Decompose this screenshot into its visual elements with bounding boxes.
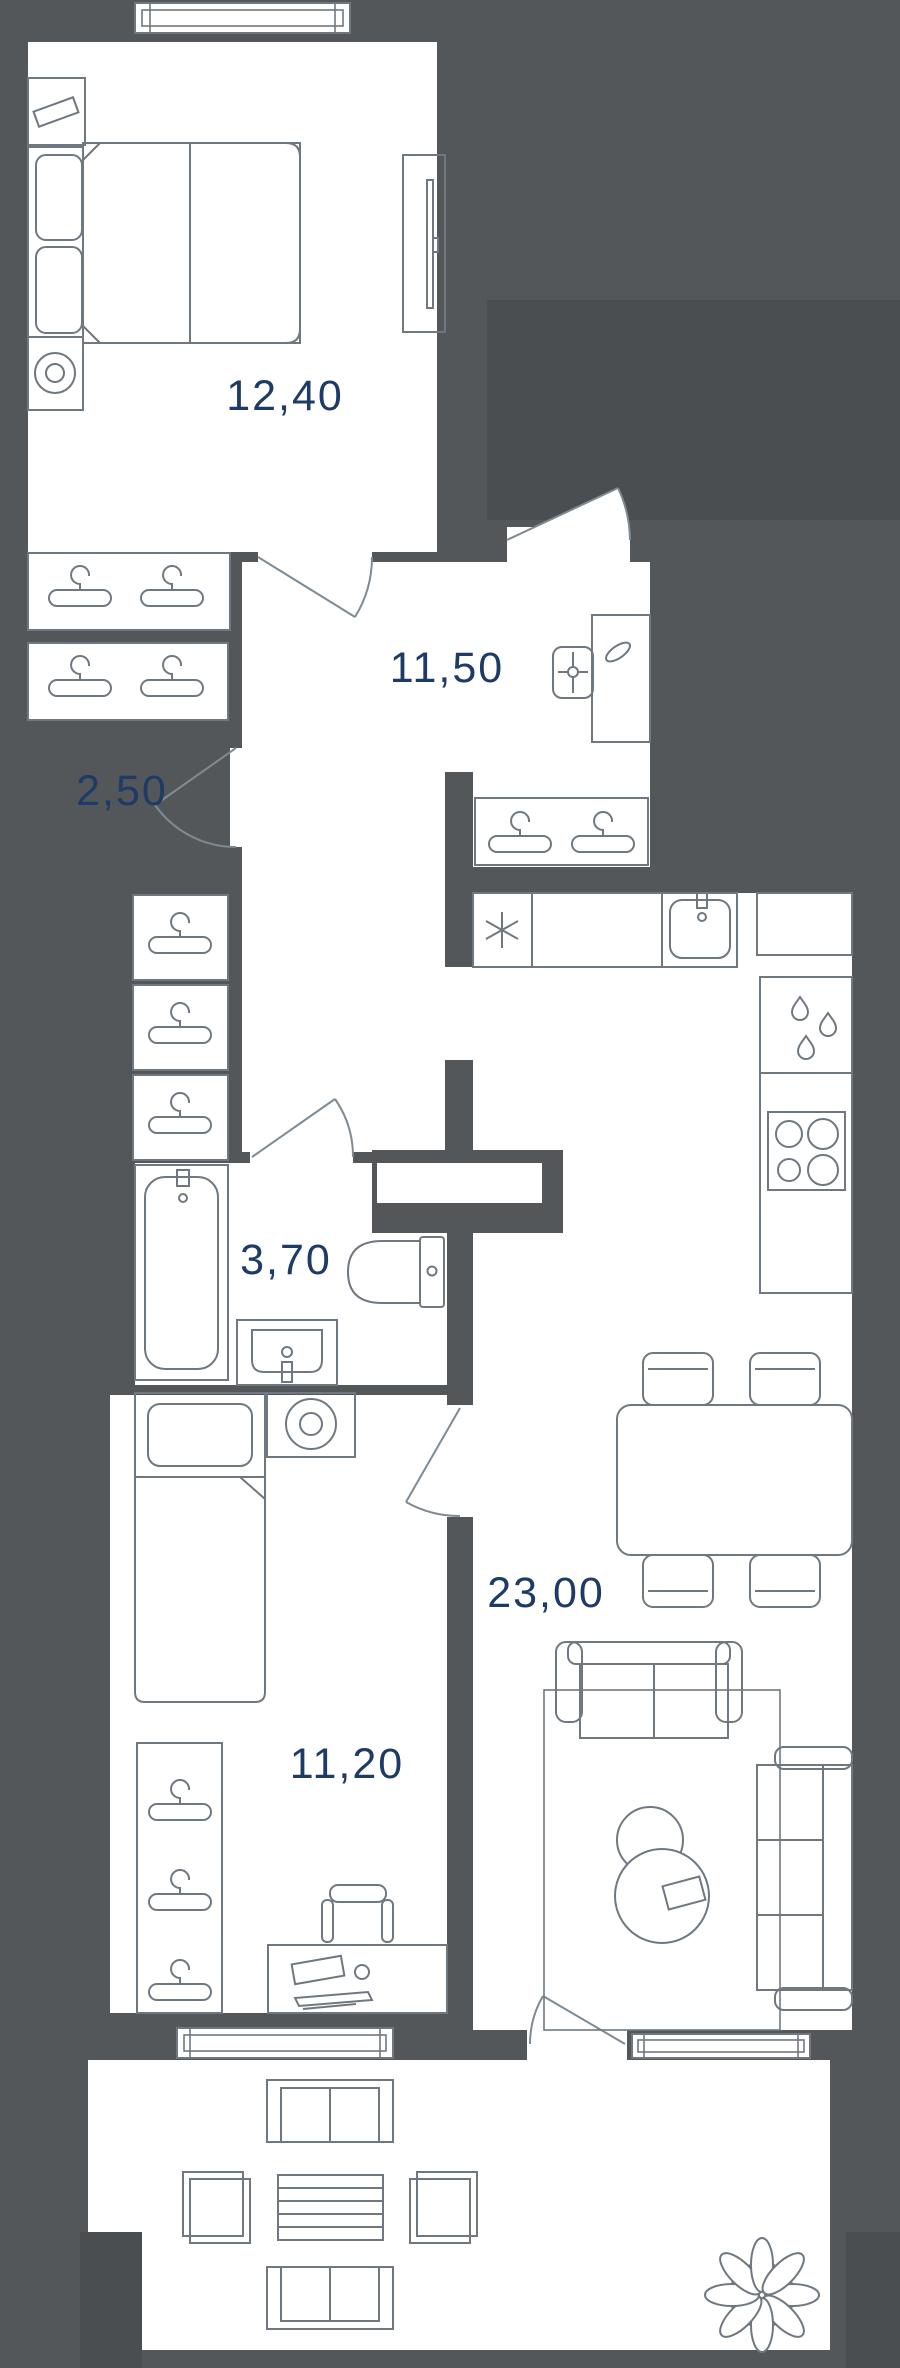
- balcony-floor: [88, 2060, 830, 2350]
- bedroom-area-label: 12,40: [226, 372, 344, 420]
- balcony-door-opening: [527, 2030, 627, 2060]
- pier-left: [80, 2232, 142, 2368]
- floor-plan-page: 12,40 11,50 2,50 3,70 23,00 11,20: [0, 0, 900, 2368]
- kitchen-living-area-label: 23,00: [487, 1569, 605, 1617]
- bedroom-door-opening: [258, 548, 372, 564]
- passage-floor: [445, 967, 473, 1060]
- bedroom2-door-opening: [445, 1405, 475, 1517]
- wardrobe-area-label: 2,50: [76, 767, 168, 815]
- dining-table: [617, 1405, 852, 1555]
- wardrobe-door-opening: [230, 748, 244, 847]
- coat-hanger-shelf: [475, 798, 648, 865]
- floor-plan-svg: 12,40 11,50 2,50 3,70 23,00 11,20: [0, 0, 900, 2368]
- living-window: [632, 2034, 810, 2058]
- stove-icon: [768, 1112, 845, 1190]
- bathroom-door-opening: [250, 1150, 353, 1165]
- pier-right: [846, 2232, 900, 2368]
- corridor-closets: [133, 895, 228, 1160]
- bathroom-area-label: 3,70: [240, 1236, 332, 1284]
- wardrobe-cabinet: [137, 1743, 222, 2013]
- bedroom2-area-label: 11,20: [290, 1740, 404, 1788]
- bedroom-window: [135, 3, 350, 33]
- bedroom-floor: [28, 42, 437, 552]
- bedroom2-window: [177, 2028, 393, 2058]
- duct-niche: [372, 1150, 563, 1233]
- exterior-block: [487, 300, 900, 520]
- hallway-area-label: 11,50: [390, 644, 504, 692]
